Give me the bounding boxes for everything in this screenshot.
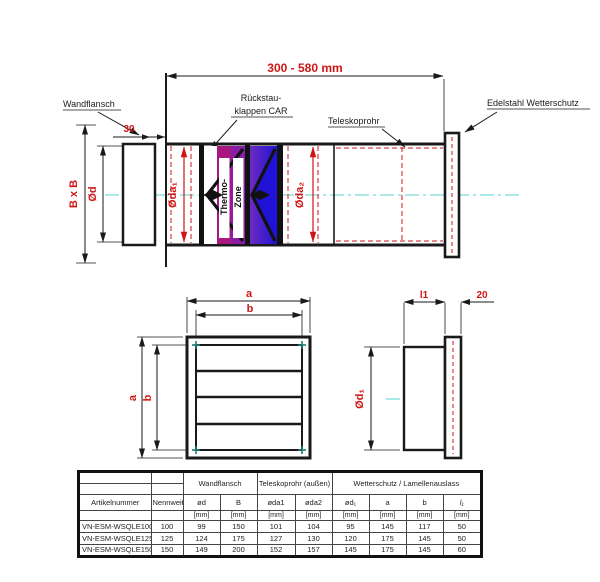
unit-cell: [mm]: [257, 510, 295, 520]
col-b: B: [220, 494, 257, 510]
table-cell: 152: [257, 544, 295, 556]
col-a: a: [369, 494, 406, 510]
table-cell: 50: [443, 520, 481, 532]
table-cell: 101: [257, 520, 295, 532]
svg-text:Øda₁: Øda₁: [167, 182, 179, 208]
svg-text:30: 30: [123, 124, 135, 135]
table-cell: [151, 483, 183, 494]
table-cell: 150: [220, 520, 257, 532]
table-group-header-row: Wandflansch Teleskoprohr (außen) Wetters…: [79, 472, 481, 483]
table-cell: 175: [369, 544, 406, 556]
drawing-canvas: 300 - 580 mm Wandflansch Rückstau- klapp…: [0, 0, 600, 582]
col-b2: b: [406, 494, 443, 510]
svg-text:l1: l1: [420, 290, 429, 301]
table-cell: 95: [332, 520, 369, 532]
table-cell: 104: [295, 520, 332, 532]
dim-b-left: b: [142, 345, 192, 450]
table-units-row: [mm] [mm] [mm] [mm] [mm] [mm] [mm] [mm]: [79, 510, 481, 520]
col-od1: ød₁: [332, 494, 369, 510]
table-cell: [79, 472, 151, 483]
spec-table: Wandflansch Teleskoprohr (außen) Wetters…: [78, 471, 482, 557]
col-nennweite: Nennweite: [151, 494, 183, 510]
svg-text:Ød₁: Ød₁: [354, 389, 366, 409]
group-header-teleskoprohr: Teleskoprohr (außen): [257, 472, 332, 494]
table-row: VN-ESM-WSQLE150 150 149 200 152 157 145 …: [79, 544, 481, 556]
unit-cell: [mm]: [220, 510, 257, 520]
table-cell: 149: [183, 544, 220, 556]
weather-protection-plate: [445, 133, 459, 257]
table-cell: VN-ESM-WSQLE150: [79, 544, 151, 556]
flap-bar-right: [277, 145, 283, 245]
side-plate: [445, 337, 461, 458]
table-cell: 175: [369, 532, 406, 544]
table-row: VN-ESM-WSQLE125 125 124 175 127 130 120 …: [79, 532, 481, 544]
teleskoprohr-label: Teleskoprohr: [328, 116, 405, 147]
technical-drawing: 300 - 580 mm Wandflansch Rückstau- klapp…: [0, 0, 600, 468]
edelstahl-wetterschutz-label: Edelstahl Wetterschutz: [465, 98, 590, 132]
table-cell: 157: [295, 544, 332, 556]
rueckstauklappen-label: Rückstau- klappen CAR: [210, 93, 293, 150]
dim-range-300-580: 300 - 580 mm: [167, 61, 444, 131]
dim-b-top: b: [196, 303, 302, 341]
svg-text:b: b: [142, 394, 154, 401]
side-view: l1 20 Ød₁: [354, 290, 494, 458]
side-body: [404, 347, 445, 450]
table-cell: [151, 510, 183, 520]
dim-l1: l1: [404, 290, 445, 344]
svg-text:klappen CAR: klappen CAR: [234, 106, 288, 116]
table-cell: 145: [332, 544, 369, 556]
table-cell: 120: [332, 532, 369, 544]
table-cell: 117: [406, 520, 443, 532]
table-cell: [79, 510, 151, 520]
table-cell: 130: [295, 532, 332, 544]
table-cell: [79, 483, 151, 494]
thermo-text-2: Zone: [233, 186, 243, 208]
table-cell: 150: [151, 544, 183, 556]
svg-text:Wandflansch: Wandflansch: [63, 99, 115, 109]
backflow-flap-module: Thermo- Zone: [199, 145, 283, 245]
table-cell: VN-ESM-WSQLE100: [79, 520, 151, 532]
col-oda1: øda1: [257, 494, 295, 510]
unit-cell: [mm]: [295, 510, 332, 520]
table-cell: 145: [406, 544, 443, 556]
table-cell: 60: [443, 544, 481, 556]
dim-range-label: 300 - 580 mm: [267, 61, 342, 75]
unit-cell: [mm]: [406, 510, 443, 520]
table-cell: 200: [220, 544, 257, 556]
dim-30: 30: [113, 124, 165, 140]
dim-a-left: a: [127, 337, 183, 458]
unit-cell: [mm]: [332, 510, 369, 520]
svg-text:Edelstahl Wetterschutz: Edelstahl Wetterschutz: [487, 98, 579, 108]
table-cell: 50: [443, 532, 481, 544]
table-header-row: Artikelnummer Nennweite ød B øda1 øda2 ø…: [79, 494, 481, 510]
col-od: ød: [183, 494, 220, 510]
svg-text:20: 20: [476, 290, 488, 301]
svg-text:B x B: B x B: [68, 180, 80, 208]
unit-cell: [mm]: [443, 510, 481, 520]
svg-text:Ød: Ød: [87, 186, 99, 201]
table-cell: 124: [183, 532, 220, 544]
svg-text:Teleskoprohr: Teleskoprohr: [328, 116, 380, 126]
col-artikelnummer: Artikelnummer: [79, 494, 151, 510]
col-l1: l₁: [443, 494, 481, 510]
table-cell: 127: [257, 532, 295, 544]
table-cell: 175: [220, 532, 257, 544]
wall-flange: [123, 144, 155, 245]
table-cell: VN-ESM-WSQLE125: [79, 532, 151, 544]
col-oda2: øda2: [295, 494, 332, 510]
svg-text:Øda₂: Øda₂: [294, 182, 306, 208]
thermo-text-1: Thermo-: [219, 179, 229, 215]
flap-bar-mid: [245, 145, 250, 245]
table-cell: 99: [183, 520, 220, 532]
dim-20: 20: [461, 290, 494, 334]
table-row: VN-ESM-WSQLE100 100 99 150 101 104 95 14…: [79, 520, 481, 532]
group-header-wandflansch: Wandflansch: [183, 472, 257, 494]
unit-cell: [mm]: [369, 510, 406, 520]
svg-text:a: a: [127, 394, 139, 401]
svg-text:a: a: [246, 288, 253, 300]
table-cell: [151, 472, 183, 483]
table-cell: 100: [151, 520, 183, 532]
svg-text:b: b: [247, 303, 254, 315]
front-view: a b a b: [127, 288, 310, 458]
top-section-view: 300 - 580 mm Wandflansch Rückstau- klapp…: [63, 61, 590, 267]
table-cell: 125: [151, 532, 183, 544]
table-cell: 145: [406, 532, 443, 544]
svg-text:Rückstau-: Rückstau-: [241, 93, 282, 103]
unit-cell: [mm]: [183, 510, 220, 520]
table-cell: 145: [369, 520, 406, 532]
group-header-wetterschutz: Wetterschutz / Lamellenauslass: [332, 472, 481, 494]
dim-od: Ød: [87, 146, 122, 242]
